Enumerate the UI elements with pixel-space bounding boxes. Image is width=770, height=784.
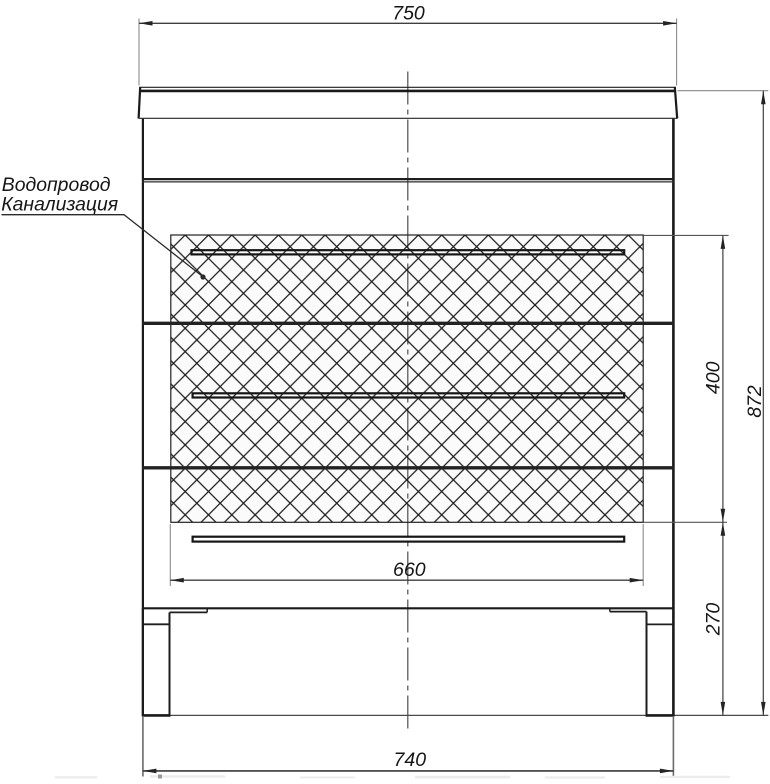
svg-text:872: 872 [744,385,766,418]
svg-text:750: 750 [392,2,425,24]
svg-text:400: 400 [703,361,725,394]
svg-text:660: 660 [393,559,426,581]
svg-text:Водопровод: Водопровод [2,174,111,196]
svg-text:Канализация: Канализация [1,194,118,216]
svg-text:270: 270 [703,603,725,637]
svg-text:740: 740 [394,749,427,771]
